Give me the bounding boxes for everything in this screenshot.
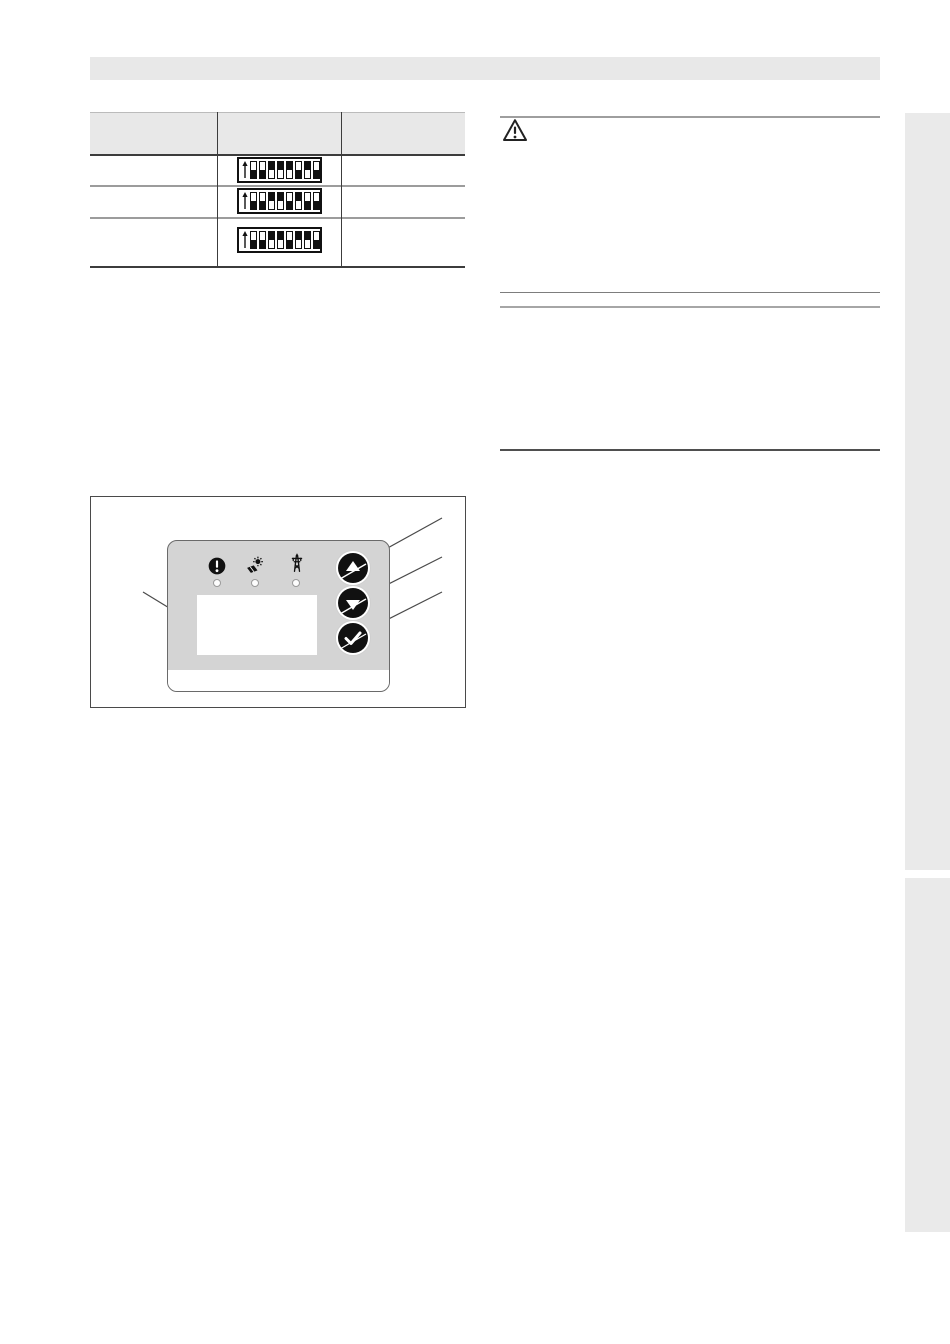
confirm-button	[338, 623, 368, 653]
control-panel-figure	[90, 496, 466, 708]
page-edge-tab-upper	[905, 113, 950, 870]
arrow-down-icon	[338, 588, 368, 618]
note-rule-top	[500, 292, 880, 293]
dip-switch-down	[259, 231, 266, 249]
dip-switch-up	[277, 161, 284, 179]
dip-switch-diagram	[237, 227, 322, 253]
dip-switch-down	[259, 192, 266, 210]
dip-switch-up	[286, 161, 293, 179]
table-row-separator	[90, 185, 465, 187]
dip-switch-down	[286, 192, 293, 210]
dip-switch-down	[250, 161, 257, 179]
up-button	[338, 553, 368, 583]
dip-switch-up	[295, 192, 302, 210]
panel-bottom-strip	[168, 670, 389, 691]
arrow-up-icon	[338, 553, 368, 583]
table-column-border	[217, 112, 218, 268]
down-button	[338, 588, 368, 618]
warning-top-rule	[500, 116, 880, 118]
dip-switch-down	[295, 161, 302, 179]
table-header-row	[90, 112, 465, 156]
grid-led	[292, 579, 300, 587]
dip-up-arrow-icon	[242, 231, 248, 249]
dip-switch-up	[277, 192, 284, 210]
dip-switch-down	[259, 161, 266, 179]
table-column-border	[341, 112, 342, 268]
dip-switch-down	[313, 231, 320, 249]
dip-up-arrow-icon	[242, 161, 248, 179]
title-band	[90, 57, 880, 80]
dip-switch-up	[268, 192, 275, 210]
dip-up-arrow-icon	[242, 192, 248, 210]
dip-switch-up	[304, 161, 311, 179]
panel-display	[197, 595, 317, 655]
solar-icon	[245, 555, 265, 575]
table-header-bottom-border	[90, 154, 465, 156]
dip-switch-diagram	[237, 188, 322, 214]
fault-led	[213, 579, 221, 587]
section-rule	[500, 449, 880, 451]
grid-icon	[287, 553, 307, 573]
table-row-separator	[90, 217, 465, 219]
dip-switch-down	[250, 192, 257, 210]
note-rule	[500, 306, 880, 308]
dip-switch-up	[268, 161, 275, 179]
dip-switch-down	[286, 231, 293, 249]
page-edge-tab-lower	[905, 878, 950, 1232]
dip-switch-up	[295, 231, 302, 249]
dip-settings-table	[90, 112, 465, 268]
solar-led	[251, 579, 259, 587]
fault-icon	[207, 556, 227, 576]
check-icon	[338, 623, 368, 653]
dip-switch-diagram	[237, 157, 322, 183]
dip-switch-down	[313, 192, 320, 210]
dip-switch-down	[313, 161, 320, 179]
dip-switch-up	[277, 231, 284, 249]
table-bottom-border	[90, 266, 465, 268]
dip-switch-up	[268, 231, 275, 249]
dip-switch-down	[304, 192, 311, 210]
warning-triangle-icon	[502, 118, 528, 143]
dip-switch-up	[304, 231, 311, 249]
dip-switch-down	[250, 231, 257, 249]
